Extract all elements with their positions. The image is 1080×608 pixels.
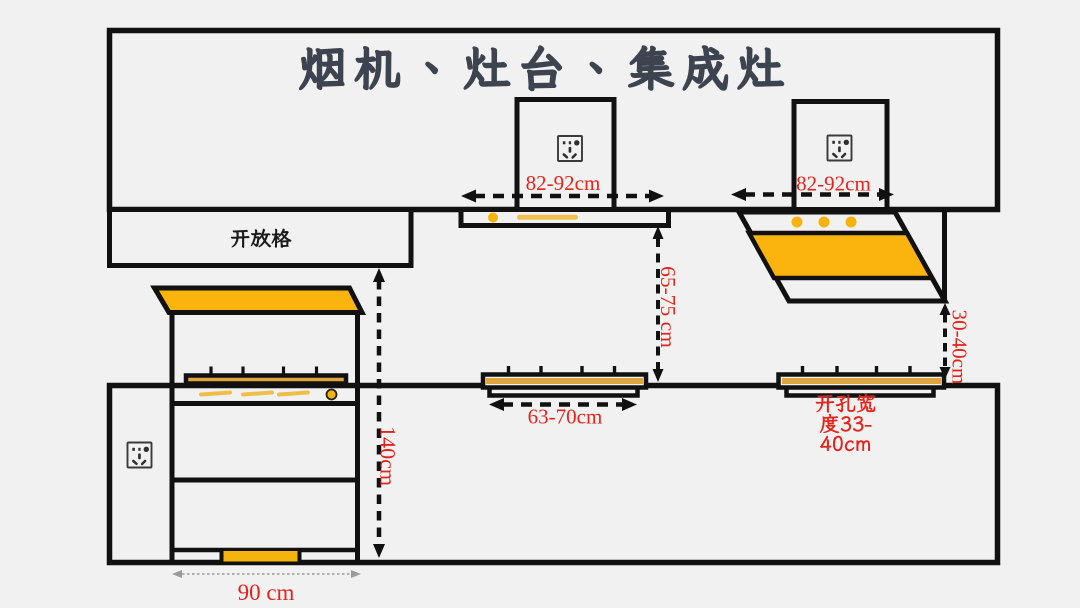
svg-text:30-40cm: 30-40cm — [948, 310, 972, 385]
svg-text:65-75 cm: 65-75 cm — [656, 266, 680, 348]
svg-text:63-70cm: 63-70cm — [528, 405, 603, 429]
svg-text:82-92cm: 82-92cm — [796, 172, 871, 196]
svg-text:90 cm: 90 cm — [238, 580, 295, 605]
svg-text:140cm: 140cm — [376, 426, 401, 486]
svg-text:82-92cm: 82-92cm — [526, 171, 601, 195]
